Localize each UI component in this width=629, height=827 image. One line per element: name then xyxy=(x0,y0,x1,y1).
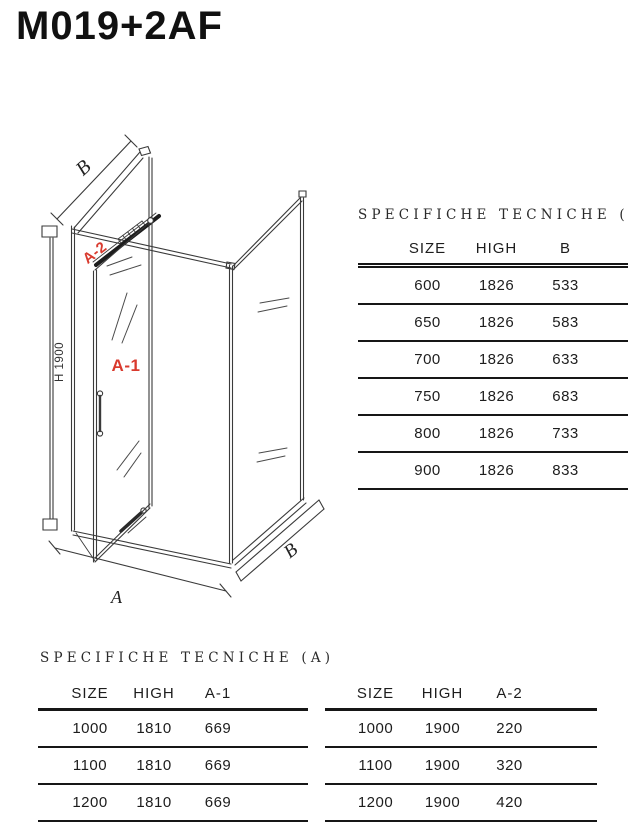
cell-size: 1200 xyxy=(342,794,409,811)
table-a-title: SPECIFICHE TECNICHE (A) xyxy=(40,650,334,666)
cell-size: 1000 xyxy=(58,720,122,737)
cell-a1: 669 xyxy=(186,757,250,774)
page-title: M019+2AF xyxy=(16,4,223,49)
col-header-a2: A-2 xyxy=(476,685,543,702)
table-row: 1200 1810 669 xyxy=(38,785,308,822)
cell-a1: 669 xyxy=(186,794,250,811)
table-row: 600 1826 533 xyxy=(358,268,628,305)
front-right-post xyxy=(226,262,235,563)
cell-b: 583 xyxy=(531,314,600,331)
col-header-high: HIGH xyxy=(409,685,476,702)
depth-dimension-bottom xyxy=(236,500,324,581)
table-row: 1000 1900 220 xyxy=(325,711,597,748)
cell-b: 733 xyxy=(531,425,600,442)
cell-high: 1826 xyxy=(462,351,531,368)
cell-size: 700 xyxy=(393,351,462,368)
h-dimension-label: H 1900 xyxy=(54,342,66,382)
col-header-high: HIGH xyxy=(462,240,531,257)
cell-size: 900 xyxy=(393,462,462,479)
table-b-header: SIZE HIGH B xyxy=(358,233,628,268)
b-top-dimension-label: B xyxy=(72,156,96,181)
cell-high: 1810 xyxy=(122,794,186,811)
table-a1-header: SIZE HIGH A-1 xyxy=(38,678,308,711)
cell-size: 1100 xyxy=(342,757,409,774)
cell-high: 1900 xyxy=(409,757,476,774)
cell-a2: 420 xyxy=(476,794,543,811)
col-header-a1: A-1 xyxy=(186,685,250,702)
col-header-size: SIZE xyxy=(342,685,409,702)
cell-size: 1000 xyxy=(342,720,409,737)
cell-high: 1826 xyxy=(462,277,531,294)
table-row: 750 1826 683 xyxy=(358,379,628,416)
cell-size: 750 xyxy=(393,388,462,405)
col-header-size: SIZE xyxy=(393,240,462,257)
cell-a1: 669 xyxy=(186,720,250,737)
cell-b: 633 xyxy=(531,351,600,368)
a-bottom-dimension-label: A xyxy=(110,587,123,607)
table-row: 900 1826 833 xyxy=(358,453,628,490)
table-row: 800 1826 733 xyxy=(358,416,628,453)
table-row: 1100 1900 320 xyxy=(325,748,597,785)
b-bottom-dimension-label: B xyxy=(280,539,302,563)
cell-high: 1826 xyxy=(462,314,531,331)
cell-high: 1810 xyxy=(122,757,186,774)
cell-size: 1100 xyxy=(58,757,122,774)
table-b: SIZE HIGH B 600 1826 533 650 1826 583 70… xyxy=(358,233,628,490)
pivot-door xyxy=(94,218,154,562)
cell-high: 1826 xyxy=(462,425,531,442)
cell-high: 1826 xyxy=(462,388,531,405)
enclosure-technical-drawing: H 1900 B A-2 A-1 A B xyxy=(28,128,340,620)
table-row: 650 1826 583 xyxy=(358,305,628,342)
cell-a2: 320 xyxy=(476,757,543,774)
a1-door-label: A-1 xyxy=(112,356,141,375)
cell-size: 600 xyxy=(393,277,462,294)
spec-sheet-page: M019+2AF xyxy=(0,0,629,827)
col-header-high: HIGH xyxy=(122,685,186,702)
left-side-panel xyxy=(72,147,153,532)
cell-high: 1900 xyxy=(409,794,476,811)
table-row: 1000 1810 669 xyxy=(38,711,308,748)
table-row: 700 1826 633 xyxy=(358,342,628,379)
col-header-b: B xyxy=(531,240,600,257)
cell-high: 1900 xyxy=(409,720,476,737)
col-header-size: SIZE xyxy=(58,685,122,702)
cell-size: 1200 xyxy=(58,794,122,811)
door-handle xyxy=(97,391,102,436)
right-side-panel xyxy=(233,191,306,565)
cell-b: 833 xyxy=(531,462,600,479)
right-glass-reflections xyxy=(257,298,289,462)
table-b-title: SPECIFICHE TECNICHE (B) xyxy=(358,207,629,223)
table-row: 1200 1900 420 xyxy=(325,785,597,822)
cell-high: 1826 xyxy=(462,462,531,479)
table-row: 1100 1810 669 xyxy=(38,748,308,785)
table-a2-header: SIZE HIGH A-2 xyxy=(325,678,597,711)
a2-panel-label: A-2 xyxy=(80,238,111,267)
cell-b: 533 xyxy=(531,277,600,294)
cell-a2: 220 xyxy=(476,720,543,737)
cell-size: 800 xyxy=(393,425,462,442)
table-a2: SIZE HIGH A-2 1000 1900 220 1100 1900 32… xyxy=(325,678,597,822)
table-a1: SIZE HIGH A-1 1000 1810 669 1100 1810 66… xyxy=(38,678,308,822)
cell-b: 683 xyxy=(531,388,600,405)
cell-high: 1810 xyxy=(122,720,186,737)
cell-size: 650 xyxy=(393,314,462,331)
